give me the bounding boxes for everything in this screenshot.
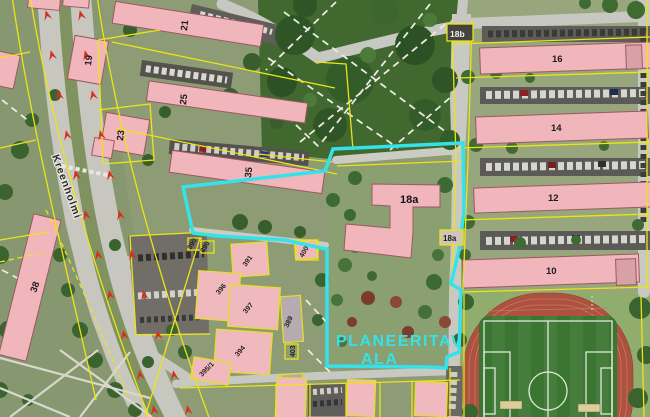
building-16 xyxy=(480,42,650,74)
dugout xyxy=(578,404,600,412)
bottom-building xyxy=(275,377,306,417)
label-23: 23 xyxy=(115,130,127,142)
map-canvas: 21 25 35 19 23 38 16 14 12 10 18a 18b 18… xyxy=(0,0,650,417)
label-18b: 18b xyxy=(450,29,465,39)
label-403: 403 xyxy=(290,345,297,357)
dugout xyxy=(500,401,522,409)
label-18a-small: 18a xyxy=(443,234,457,243)
bottom-building xyxy=(346,380,375,417)
label-14: 14 xyxy=(551,123,562,134)
label-19: 19 xyxy=(83,55,95,67)
label-21: 21 xyxy=(179,19,191,32)
aerial-map[interactable]: 21 25 35 19 23 38 16 14 12 10 18a 18b 18… xyxy=(0,0,650,417)
plan-area-label-line1: PLANEERITAV xyxy=(336,333,463,350)
label-12: 12 xyxy=(548,193,559,204)
label-25: 25 xyxy=(178,93,190,106)
label-18a: 18a xyxy=(400,194,419,206)
bottom-building xyxy=(414,381,447,416)
plan-area-label-line2: ALA xyxy=(361,351,398,368)
building-14 xyxy=(476,111,649,144)
label-35: 35 xyxy=(243,166,255,179)
label-16: 16 xyxy=(552,54,563,65)
label-10: 10 xyxy=(546,266,557,277)
